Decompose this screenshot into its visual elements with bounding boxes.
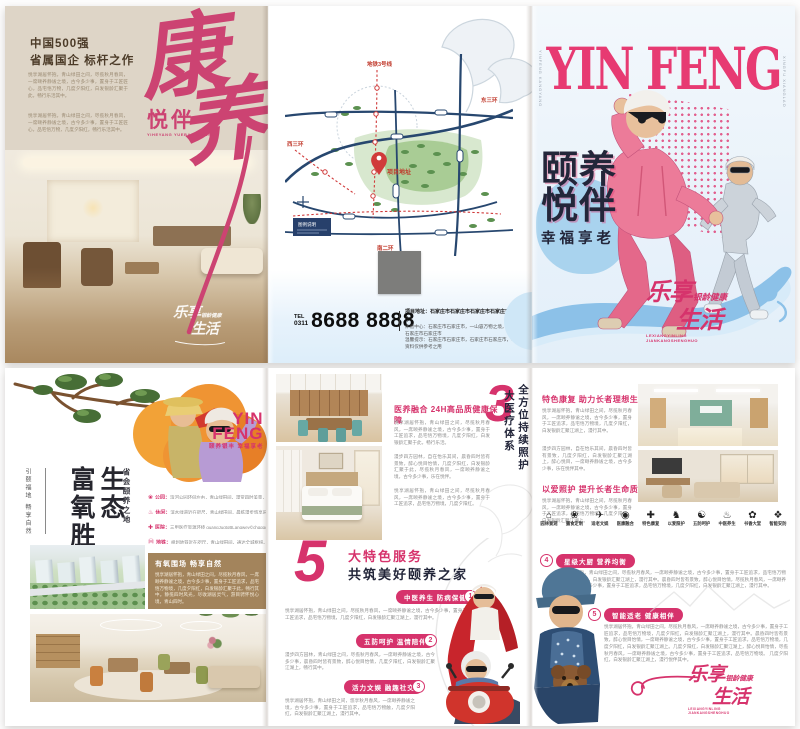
hospital-icon: ✚ [148, 525, 153, 529]
medical-icon: ◉ [613, 510, 637, 521]
flower-arrangement [206, 634, 222, 650]
coffered-ceiling [276, 374, 382, 390]
teal-chair-2 [318, 428, 328, 442]
amenity-hospital: ✚医院：三甲医疗资源环绕 guangJugtoBLangwey©chgqgo。 [148, 516, 266, 529]
icon-care: ♞以爱照护 [664, 510, 688, 527]
man-with-dog-photo [532, 554, 608, 726]
protection-icon: ☯ [690, 510, 714, 521]
contact-divider [399, 311, 400, 331]
qr-placeholder [378, 251, 421, 294]
garden-icon: ⌂ [537, 510, 561, 521]
tv-screen [652, 458, 682, 474]
map-label-east: 东三环 [481, 96, 498, 104]
park-icon: ❀ [148, 495, 153, 499]
number-3-caption-1: 全方位持续照护 [516, 384, 531, 472]
wardrobe [276, 450, 302, 512]
map-compass [297, 196, 309, 208]
teal-chair-4 [352, 420, 362, 436]
watermark-underline [173, 338, 227, 346]
chair-orange-2 [140, 672, 153, 692]
rehab-paragraph-1: 悦享湖居怀抱，青山绿田之间，尽揽秋月春风，一席颐养静谧之境，古今多少事，置身于工… [542, 408, 632, 435]
panel-front-cover: YIN FENG YINFENG KANGYANG XINGFU XIANGLA… [532, 6, 795, 363]
cover-title-block: 颐养 悦伴 幸福享老 [541, 152, 617, 246]
chair-orange-1 [90, 666, 103, 686]
media-console [646, 478, 690, 485]
teal-chair-3 [336, 428, 346, 442]
back-paragraph-2: 悦享湖居怀抱，青山绿田之间，尽揽秋月春风，一席颐养静谧之境，古今多少事，置身于工… [28, 113, 128, 134]
niche-lamp [83, 198, 103, 218]
suite-living-photo [638, 450, 778, 502]
sofa-right [208, 666, 260, 688]
care-section-title: 以爱照护 提升长者生命质量 [542, 484, 647, 495]
panel-map-contact: 地铁3号线 东三环 西三环 南二环 项目地址 图例说明 TEL 0311 [268, 6, 532, 363]
feature-number-3: 3 [412, 680, 425, 693]
logo-subtitle: 颐养银丰 幸福享老 [209, 445, 264, 450]
headline-line2: 省属国企 标杆之作 [30, 53, 134, 70]
hanging-plants [192, 614, 262, 630]
feature-text-3: 悦享湖居怀抱，青山绿田之间，悠享秋月春风，一席颐养静谧之境，古今多少事，置身于工… [285, 698, 415, 718]
headline-line1: 中国500强 [30, 36, 134, 53]
svg-text:图例说明: 图例说明 [298, 221, 316, 228]
cover-slogan-logo: 乐享银龄健康 生活 LEXIANGYINLINGJIANKANGSHENGHUO [646, 272, 727, 343]
sofa-main [694, 482, 740, 498]
lobby-icon: ✿ [741, 510, 765, 521]
armchair-2 [81, 248, 113, 286]
bottom-slogan-logo: 乐享银龄健康 生活 LEXIANGYINLINGJIANKANGSHENGHUO [688, 658, 753, 715]
pillow-2 [332, 488, 352, 496]
map-label-project: 项目地址 [387, 168, 411, 176]
icon-meals: ❀膳食定制 [562, 510, 586, 527]
brochure-flatlay: 中国500强 省属国企 标杆之作 悦享湖居怀抱，青山绿田之间，尽揽秋月春风，一席… [0, 0, 800, 729]
back-headline: 中国500强 省属国企 标杆之作 [30, 36, 134, 69]
yinfeng-logo-small: YIN FENG 颐养银丰 幸福享老 [209, 412, 264, 450]
info-box-body: 悦享湖居怀抱，青山绿田之间，尽揽秋月春风，一席颐养静谧之境，古今多少事，置身于工… [155, 572, 259, 606]
ceiling-light-strip-2 [716, 389, 760, 392]
phone-block: TEL 0311 8688 8888 [294, 309, 415, 333]
icon-garden: ⌂园林景观 [537, 510, 561, 527]
cover-title-1: 颐养 [541, 152, 617, 188]
care-icon: ♞ [664, 510, 688, 521]
cover-title-2: 悦伴 [541, 188, 617, 224]
wall-sign [700, 406, 722, 413]
aerial-render-photo [30, 545, 145, 609]
amenity-park: ❀公园：滨河公园环伺左右，青山绿田间，漫赏四时美景，一路畅怀。 [148, 486, 266, 499]
icon-security: ❖智能安防 [766, 510, 790, 527]
amenity-leisure: ♨休闲：滨水绿道近在咫尺，青山绿田间，晨练漫步悠享乐龄。 [148, 501, 266, 514]
leisure-icon: ♨ [148, 510, 153, 514]
amenity-metro: Ⓜ地铁：规划地铁近在咫尺，青山绿田间，通达全城枢纽。 [148, 531, 266, 544]
outer-spread-sheet: 中国500强 省属国企 标杆之作 悦享湖居怀抱，青山绿田之间，尽揽秋月春风，一席… [5, 6, 795, 363]
dining-room-photo [276, 374, 382, 442]
meals-icon: ❀ [562, 510, 586, 521]
teal-chair-1 [298, 420, 308, 436]
corridor-photo [638, 384, 778, 446]
green-accent-wall [690, 400, 732, 426]
pillow-1 [308, 488, 328, 496]
number-3-caption-2: 大医疗体系 [502, 390, 517, 453]
window-mullion [747, 454, 748, 484]
feature-badge-2: 五防呵护 温情陪伴 [356, 634, 435, 648]
ceiling-light-strip-1 [654, 389, 698, 392]
map-label-metro: 地铁3号线 [367, 60, 393, 68]
armchair [662, 485, 682, 498]
service-icon-row: ⌂园林景观 ❀膳食定制 ✈适老文娱 ◉医康融合 ✚特色康复 ♞以爱照护 ☯五防呵… [537, 510, 790, 527]
address-line-2: 温馨提示：石家庄市石家庄市，石家庄市石家庄市，本宣传资料仅供参考之用 [405, 337, 525, 350]
metro-icon: Ⓜ [148, 540, 154, 544]
icon-rehab: ✚特色康复 [639, 510, 663, 527]
inner-spread-sheet: YIN FENG 颐养银丰 幸福享老 生态 富氧胜境 省会颐养之地 引颐福地 畅… [5, 368, 795, 726]
panel-medical: 医养融合 24H高品质健康保障 悦享湖居怀抱，青山绿田之间，尽揽秋月春风，一席颐… [268, 368, 532, 726]
script-pinyin: YIHEYANG YUEBAN XINGFU [147, 132, 215, 137]
chair-green-2 [196, 666, 208, 684]
chair-green-1 [158, 654, 170, 670]
info-box-title: 有氧围场 畅享自然 [155, 559, 259, 569]
wall-art [320, 454, 342, 468]
panel-back-cover: 中国500强 省属国企 标杆之作 悦享湖居怀抱，青山绿田之间，尽揽秋月春风，一席… [5, 6, 268, 363]
table-1 [108, 658, 138, 672]
panel-ecology: YIN FENG 颐养银丰 幸福享老 生态 富氧胜境 省会颐养之地 引颐福地 畅… [5, 368, 268, 726]
scooter-seniors-photo [426, 582, 532, 726]
security-icon: ❖ [766, 510, 790, 521]
feature-badge-3: 活力文娱 融趣社交 [344, 680, 423, 694]
masthead-side-text-2: XINGFU XIANGLAO [782, 56, 787, 108]
oxygen-info-box: 有氧围场 畅享自然 悦享湖居怀抱，青山绿田之间，尽揽秋月春风，一席颐养静谧之境，… [148, 553, 266, 609]
panel-services: 特色康复 助力长者理想生活 悦享湖居怀抱，青山绿田之间，尽揽秋月春风，一席颐养静… [532, 368, 795, 726]
wood-door-right [750, 398, 768, 428]
rehab-paragraph-2: 漫步四方园林，自在怡乐其间，晨昏四时皆有景致，几度夕阳红，白发银龄汇聚江湖上，醉… [542, 446, 632, 473]
icon-lobby: ✿书香大堂 [741, 510, 765, 527]
vertical-side-note: 引颐福地 畅享自然 [23, 468, 32, 536]
bookshelf-wall [290, 390, 368, 416]
ceiling-light-ring [100, 619, 162, 631]
recreation-icon: ✈ [588, 510, 612, 521]
coffee-table [125, 262, 159, 274]
script-subtitle: 悦伴 [147, 104, 195, 134]
medical-paragraph-1: 悦享湖居怀抱，青山绿田之间，尽揽秋月春风，一席颐养静谧之境，古今多少事，置身于工… [394, 420, 490, 447]
feature-text-2: 漫步四方园林，青山绿田之间，尽揽秋月春风，一席颐养静谧之境，古今多少事，晨昏四时… [285, 652, 435, 672]
map-legend: 图例说明 [293, 218, 331, 236]
headboard [306, 472, 358, 486]
map-label-west: 西三环 [287, 140, 304, 148]
masthead-side-text: YINFENG KANGYANG [538, 50, 543, 107]
calligraphy-brush-tail [155, 136, 265, 336]
cover-subtitle: 幸福享老 [541, 232, 617, 246]
rehab-icon: ✚ [639, 510, 663, 521]
tel-area-code: 0311 [294, 321, 308, 328]
floor-sheen [678, 428, 742, 446]
tcm-icon: ♨ [715, 510, 739, 521]
wood-door-left [650, 398, 666, 428]
mountain-watermark [650, 582, 790, 616]
lounge-photo [30, 614, 266, 702]
icon-tcm: ♨中医养生 [715, 510, 739, 527]
logo-line-feng: FENG [209, 427, 264, 442]
armchair-1 [23, 242, 61, 288]
bed-throw [302, 506, 362, 515]
bedroom-photo [276, 446, 382, 540]
vertical-subtitle: 省会颐养之地 [121, 468, 132, 525]
icon-medical: ◉医康融合 [613, 510, 637, 527]
location-map: 地铁3号线 东三环 西三环 南二环 项目地址 图例说明 [285, 54, 513, 256]
big-number-5: 5 [294, 528, 326, 595]
rehab-section-title: 特色康复 助力长者理想生活 [542, 394, 647, 405]
icon-protection: ☯五防呵护 [690, 510, 714, 527]
vertical-rule [45, 468, 46, 534]
icon-recreation: ✈适老文娱 [588, 510, 612, 527]
wood-shelf [36, 634, 80, 668]
back-paragraph-1: 悦享湖居怀抱，青山绿田之间，尽揽秋月春风，一席颐养静谧之境，古今多少事，置身于工… [28, 72, 128, 100]
